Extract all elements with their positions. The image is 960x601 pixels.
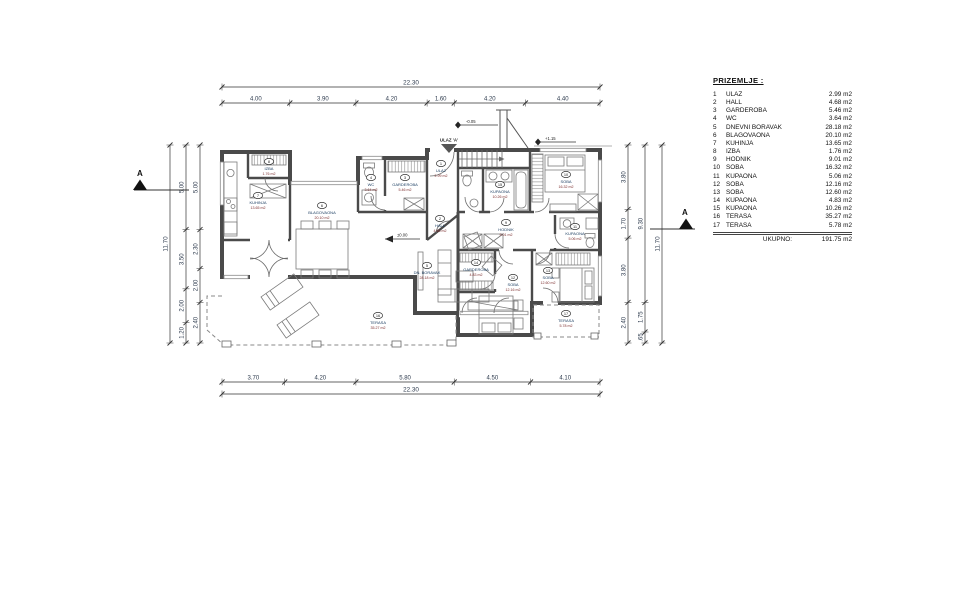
legend-total-label: UKUPNO:	[763, 236, 792, 244]
legend-row: 12SOBA12.16 m2	[713, 181, 852, 189]
legend-row: 17TERASA5.78 m2	[713, 222, 852, 230]
room-label-11: 11KUPAONA5.06 m2	[565, 223, 585, 240]
dimension-value: 2.00	[180, 299, 186, 311]
legend-name: KUPAONA	[726, 197, 806, 205]
legend-num: 10	[713, 164, 726, 172]
room-number: 5	[426, 263, 428, 268]
room-name: IZBA	[265, 166, 274, 171]
legend-num: 16	[713, 213, 726, 221]
dimension-value: 4.40	[557, 97, 569, 103]
legend-num: 1	[713, 91, 726, 99]
windows	[220, 148, 601, 314]
section-triangle-icon	[133, 180, 147, 191]
room-number: 11	[573, 224, 577, 229]
room-name: HALL	[435, 223, 446, 228]
room-area: 5.46 m2	[399, 188, 412, 192]
legend-area: 5.78 m2	[806, 222, 852, 230]
room-name: BLAGOVAONA	[308, 210, 336, 215]
legend-total-row: UKUPNO: 191.75 m2	[713, 232, 852, 245]
room-name: SOBA	[542, 275, 553, 280]
legend-num: 12	[713, 181, 726, 189]
legend-total-value: 191.75 m2	[806, 236, 852, 244]
legend-name: WC	[726, 115, 806, 123]
legend-name: SOBA	[726, 181, 806, 189]
legend-area: 4.68 m2	[806, 99, 852, 107]
dimension-chain: 11.70	[655, 143, 666, 346]
dimension-value: 2.00	[194, 279, 200, 291]
room-label-10: 10SOBA16.32 m2	[559, 171, 574, 188]
legend-area: 13.65 m2	[806, 140, 852, 148]
dimension-value: 3.50	[180, 253, 186, 265]
legend-name: ULAZ	[726, 91, 806, 99]
legend-name: GARDEROBA	[726, 107, 806, 115]
legend-rows: 1ULAZ2.99 m22HALL4.68 m23GARDEROBA5.46 m…	[713, 91, 852, 230]
legend-name: BLAGOVAONA	[726, 132, 806, 140]
legend-row: 11KUPAONA5.06 m2	[713, 173, 852, 181]
dimension-chain: 9.301.75.65	[639, 143, 649, 346]
legend-name: SOBA	[726, 189, 806, 197]
legend-row: 5DNEVNI BORAVAK28.18 m2	[713, 124, 852, 132]
dimension-chain: 5.002.302.002.40	[194, 143, 204, 346]
legend-name: HALL	[726, 99, 806, 107]
legend-num: 15	[713, 205, 726, 213]
dimension-lines-layer: 22.304.003.904.201.604.204.403.704.205.8…	[163, 80, 666, 398]
dimension-value: 9.30	[639, 217, 645, 229]
legend-area: 12.16 m2	[806, 181, 852, 189]
room-name: SOBA	[507, 282, 518, 287]
legend-row: 4WC3.64 m2	[713, 115, 852, 123]
room-number: 16	[376, 313, 380, 318]
legend-area: 16.32 m2	[806, 164, 852, 172]
section-triangle-icon	[679, 219, 693, 230]
dimension-value: 4.10	[559, 376, 571, 382]
legend-title: PRIZEMLJE :	[713, 76, 852, 85]
room-number: 8	[268, 159, 270, 164]
legend-row: 8IZBA1.76 m2	[713, 148, 852, 156]
room-name: TERASA	[370, 320, 386, 325]
legend-area: 10.26 m2	[806, 205, 852, 213]
legend-name: SOBA	[726, 164, 806, 172]
dimension-value: 2.30	[194, 243, 200, 255]
section-letter: A	[682, 208, 688, 217]
legend-num: 3	[713, 107, 726, 115]
room-area: 2.99 m2	[435, 174, 448, 178]
room-area: 4.68 m2	[434, 229, 447, 233]
room-number: 2	[439, 216, 441, 221]
room-label-15: 15KUPAONA10.26 m2	[490, 181, 510, 198]
legend-num: 9	[713, 156, 726, 164]
floor-plan-sheet: 1ULAZ2.99 m22HALL4.68 m23GARDEROBA5.46 m…	[0, 0, 960, 601]
entrance-label: ULAZ 'A'	[440, 138, 458, 143]
legend-row: 15KUPAONA10.26 m2	[713, 205, 852, 213]
room-area: 5.78 m2	[560, 324, 573, 328]
room-label-9: 9HODNIK9.01 m2	[498, 219, 514, 236]
room-number: 12	[511, 275, 515, 280]
legend-area: 3.64 m2	[806, 115, 852, 123]
room-name: KUHINJA	[249, 200, 266, 205]
legend-num: 17	[713, 222, 726, 230]
room-area: 12.16 m2	[506, 288, 521, 292]
room-label-12: 12SOBA12.16 m2	[506, 274, 521, 291]
dimension-value: .65	[639, 333, 645, 342]
legend-num: 2	[713, 99, 726, 107]
dimension-value: 4.00	[250, 97, 262, 103]
legend-area: 35.27 m2	[806, 213, 852, 221]
dimension-value: 3.80	[622, 264, 628, 276]
room-area: 12.60 m2	[541, 281, 556, 285]
room-area: 28.18 m2	[420, 276, 435, 280]
dimension-value: 1.70	[622, 217, 628, 229]
legend-name: KUPAONA	[726, 205, 806, 213]
dimension-value: 2.40	[622, 316, 628, 328]
room-number: 15	[498, 182, 502, 187]
section-mark-right: A	[650, 208, 695, 229]
dimension-value: 1.20	[180, 326, 186, 338]
legend-area: 5.06 m2	[806, 173, 852, 181]
room-name: SOBA	[560, 179, 571, 184]
legend-num: 5	[713, 124, 726, 132]
room-name: HODNIK	[498, 227, 514, 232]
dimension-chain: 22.30	[220, 80, 603, 91]
elevation-value: -0.05	[466, 119, 476, 124]
dimension-value: 11.70	[163, 236, 170, 252]
room-area: 4.83 m2	[470, 273, 483, 277]
legend-area: 4.83 m2	[806, 197, 852, 205]
elevation-marker-upper: +1.15	[535, 136, 576, 146]
room-name: GARDEROBA	[392, 182, 418, 187]
dimension-value: 3.90	[317, 97, 329, 103]
dimension-chain: 4.003.904.201.604.204.40	[220, 97, 603, 107]
legend-name: HODNIK	[726, 156, 806, 164]
legend-num: 11	[713, 173, 726, 181]
room-label-3: 3GARDEROBA5.46 m2	[392, 174, 418, 191]
legend-num: 8	[713, 148, 726, 156]
room-area: 3.64 m2	[365, 188, 378, 192]
room-label-13: 13SOBA12.60 m2	[541, 267, 556, 284]
dimension-value: 4.20	[314, 376, 326, 382]
dimension-value: 22.30	[403, 387, 419, 394]
legend-name: KUHINJA	[726, 140, 806, 148]
legend-area: 28.18 m2	[806, 124, 852, 132]
dimension-value: 5.80	[399, 376, 411, 382]
room-name: DN. BORAVAK	[414, 270, 441, 275]
legend-row: 10SOBA16.32 m2	[713, 164, 852, 172]
legend-row: 1ULAZ2.99 m2	[713, 91, 852, 99]
dimension-value: 3.70	[248, 376, 260, 382]
room-label-17: 17TERASA5.78 m2	[558, 310, 574, 327]
room-area: 5.06 m2	[569, 237, 582, 241]
room-label-4: 4WC3.64 m2	[365, 174, 378, 191]
room-number: 7	[257, 193, 259, 198]
room-name: ULAZ	[436, 168, 447, 173]
legend-name: DNEVNI BORAVAK	[726, 124, 806, 132]
room-area: 20.10 m2	[315, 216, 330, 220]
legend-row: 6BLAGOVAONA20.10 m2	[713, 132, 852, 140]
elevation-value: +1.15	[545, 136, 556, 141]
legend-num: 14	[713, 197, 726, 205]
legend-name: KUPAONA	[726, 173, 806, 181]
legend-num: 13	[713, 189, 726, 197]
room-name: TERASA	[558, 318, 574, 323]
legend-area: 2.99 m2	[806, 91, 852, 99]
dimension-value: 22.30	[403, 80, 419, 87]
elevation-marker-entrance: -0.05	[455, 119, 498, 129]
legend-row: 14KUPAONA4.83 m2	[713, 197, 852, 205]
legend-area: 5.46 m2	[806, 107, 852, 115]
legend-row: 13SOBA12.60 m2	[713, 189, 852, 197]
legend-area: 12.60 m2	[806, 189, 852, 197]
section-letter: A	[137, 169, 143, 178]
room-area: 9.01 m2	[500, 233, 513, 237]
room-label-2: 2HALL4.68 m2	[434, 215, 447, 232]
legend-row: 3GARDEROBA5.46 m2	[713, 107, 852, 115]
room-number: 17	[564, 311, 568, 316]
elevation-marker-floor: ±0.00	[385, 233, 420, 243]
dimension-value: 5.00	[194, 181, 200, 193]
legend-num: 6	[713, 132, 726, 140]
dimension-value: 1.75	[639, 311, 645, 323]
room-number: 9	[505, 220, 507, 225]
dimension-value: 3.80	[622, 171, 628, 183]
dimension-chain: 3.801.703.802.40	[622, 143, 632, 346]
dimension-chain: 22.30	[220, 387, 603, 398]
dimension-value: 11.70	[655, 236, 662, 252]
dimension-value: 2.40	[194, 316, 200, 328]
room-area: 16.32 m2	[559, 185, 574, 189]
room-number: 3	[404, 175, 406, 180]
room-area: 10.26 m2	[493, 195, 508, 199]
room-label-16: 16TERASA35.27 m2	[370, 312, 386, 329]
dimension-value: 4.50	[487, 376, 499, 382]
room-name: GARDEROBA	[463, 267, 489, 272]
legend-name: IZBA	[726, 148, 806, 156]
room-number: 6	[321, 203, 323, 208]
legend-num: 4	[713, 115, 726, 123]
legend-row: 9HODNIK9.01 m2	[713, 156, 852, 164]
room-label-1: 1ULAZ2.99 m2	[435, 160, 448, 177]
dimension-chain: 5.003.502.001.20	[180, 143, 190, 346]
legend-area: 1.76 m2	[806, 148, 852, 156]
legend-name: TERASA	[726, 222, 806, 230]
room-name: WC	[368, 182, 375, 187]
dimension-value: 5.00	[180, 181, 186, 193]
room-area: 35.27 m2	[371, 326, 386, 330]
room-number: 13	[546, 268, 550, 273]
room-label-6: 6BLAGOVAONA20.10 m2	[308, 202, 336, 219]
legend-area: 9.01 m2	[806, 156, 852, 164]
room-name: KUPAONA	[565, 231, 585, 236]
room-area: 1.76 m2	[263, 172, 276, 176]
legend-row: 16TERASA35.27 m2	[713, 213, 852, 221]
dimension-value: 4.20	[386, 97, 398, 103]
legend-area: 20.10 m2	[806, 132, 852, 140]
dimension-value: 4.20	[484, 97, 496, 103]
dimension-value: 1.60	[435, 97, 447, 103]
room-area: 13.65 m2	[251, 206, 266, 210]
legend-name: TERASA	[726, 213, 806, 221]
elevation-value: ±0.00	[397, 233, 408, 238]
dimension-chain: 3.704.205.804.504.10	[220, 376, 603, 386]
room-number: 1	[440, 161, 442, 166]
room-label-8: 8IZBA1.76 m2	[263, 158, 276, 175]
legend-num: 7	[713, 140, 726, 148]
legend-row: 7KUHINJA13.65 m2	[713, 140, 852, 148]
room-name: KUPAONA	[490, 189, 510, 194]
room-label-7: 7KUHINJA13.65 m2	[249, 192, 266, 209]
dimension-chain: 11.70	[163, 143, 174, 346]
legend-panel: PRIZEMLJE : 1ULAZ2.99 m22HALL4.68 m23GAR…	[713, 76, 852, 244]
legend-row: 2HALL4.68 m2	[713, 99, 852, 107]
